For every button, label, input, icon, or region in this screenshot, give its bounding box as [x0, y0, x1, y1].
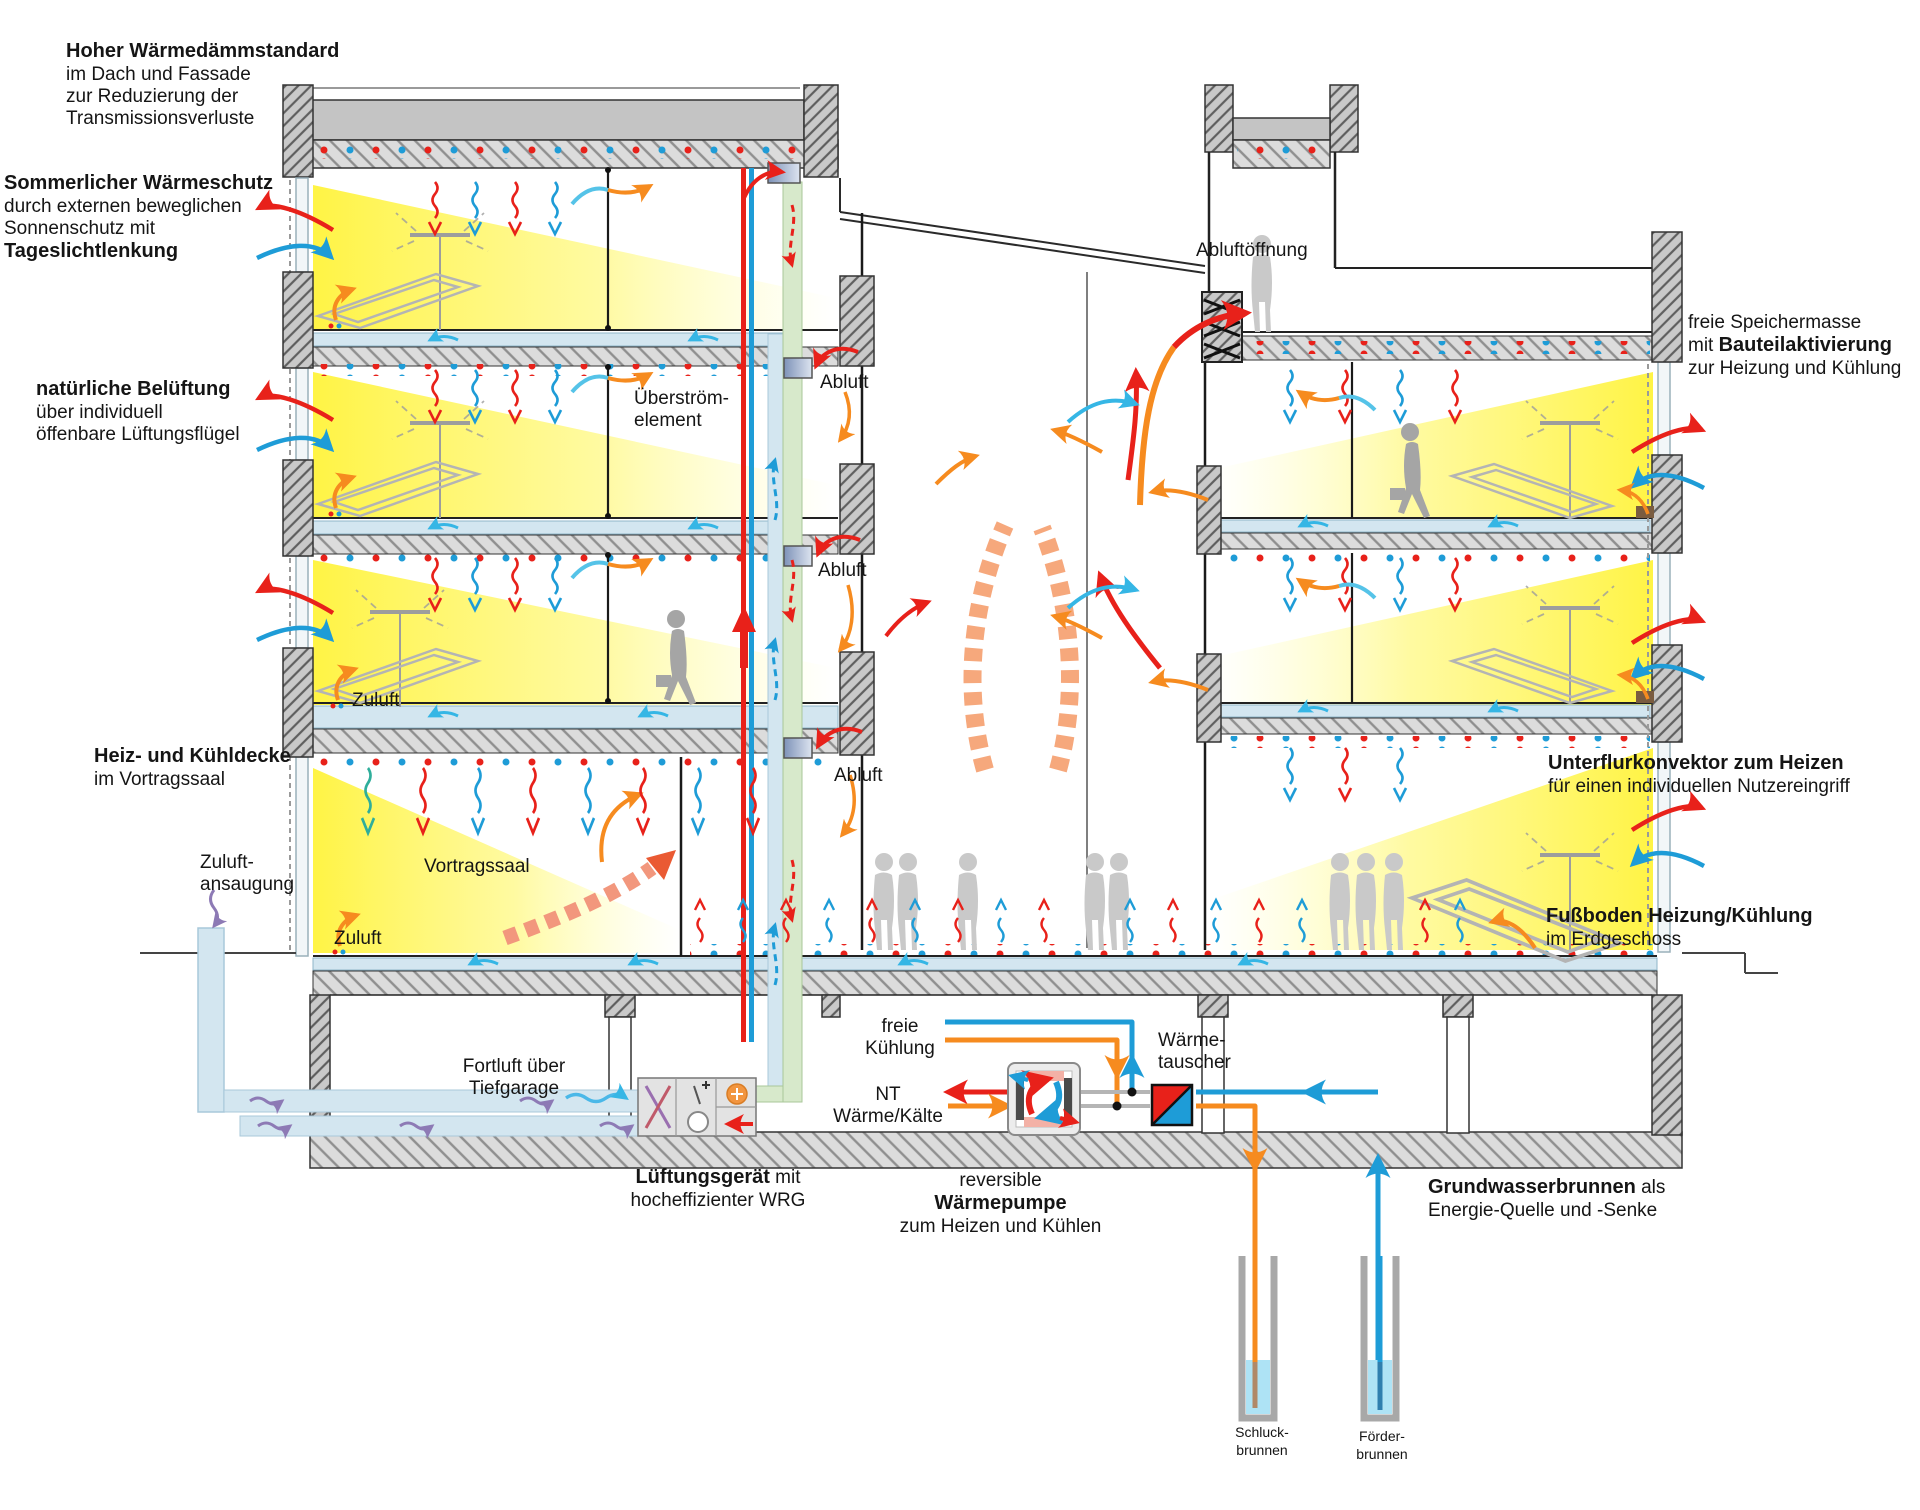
label-abluft-1: Abluft — [820, 372, 869, 394]
facade-right — [1648, 232, 1682, 952]
label-gw-bold: Grundwasserbrunnen — [1428, 1176, 1636, 1198]
label-nt: NT Wärme/Kälte — [822, 1084, 954, 1129]
label-hx-l1: Wärme- — [1158, 1030, 1231, 1052]
label-summer-protection: Sommerlicher Wärmeschutz durch externen … — [4, 172, 273, 264]
label-exhaust-opening: Abluftöffnung — [1196, 240, 1308, 262]
label-fortluft: Fortluft über Tiefgarage — [448, 1056, 580, 1101]
label-intake-l1: Zuluft- — [200, 852, 294, 874]
groundwater-wells — [1242, 1256, 1396, 1418]
label-mass-l2-bold: Bauteilaktivierung — [1719, 334, 1892, 356]
label-nt-l1: NT — [822, 1084, 954, 1106]
building-section-diagram: Hoher Wärmedämmstandard im Dach und Fass… — [0, 0, 1920, 1510]
label-freecool-l2: Kühlung — [845, 1038, 955, 1060]
label-gw-rest: als — [1636, 1177, 1666, 1198]
label-well2-l2: brunnen — [1342, 1446, 1422, 1464]
label-fortluft-l1: Fortluft über — [448, 1056, 580, 1078]
label-zuluft-ground: Zuluft — [334, 928, 382, 950]
label-natvent-title: natürliche Belüftung — [36, 378, 240, 402]
label-overflow-element: Überström- element — [634, 388, 729, 433]
label-production-well: Förder- brunnen — [1342, 1428, 1422, 1463]
label-natural-ventilation: natürliche Belüftung über individuell öf… — [36, 378, 240, 446]
label-thermal-mass: freie Speichermasse mit Bauteilaktivieru… — [1688, 312, 1901, 380]
label-abluft-3: Abluft — [834, 765, 883, 787]
label-heating-cooling-ceiling: Heiz- und Kühldecke im Vortragssaal — [94, 745, 291, 791]
label-well1-l2: brunnen — [1222, 1442, 1302, 1460]
label-well1-l1: Schluck- — [1222, 1424, 1302, 1442]
label-hp-l2: Wärmepumpe — [893, 1192, 1108, 1216]
exhaust-opening-louvre — [1202, 292, 1242, 362]
label-insulation-l3: Transmissionsverluste — [66, 108, 339, 130]
label-hx-l2: tauscher — [1158, 1052, 1231, 1074]
label-ahu-rest: mit — [770, 1167, 801, 1188]
label-floorheat-l1: im Erdgeschoss — [1546, 929, 1813, 951]
atrium-wall-piers — [840, 276, 1221, 755]
label-intake: Zuluft- ansaugung — [200, 852, 294, 897]
label-underfloor-convector: Unterflurkonvektor zum Heizen für einen … — [1548, 752, 1850, 798]
label-insulation: Hoher Wärmedämmstandard im Dach und Fass… — [66, 40, 339, 131]
label-hp-l3: zum Heizen und Kühlen — [893, 1216, 1108, 1238]
label-heat-exchanger: Wärme- tauscher — [1158, 1030, 1231, 1075]
label-overflow-l2: element — [634, 410, 729, 432]
label-ahu: Lüftungsgerät mit hocheffizienter WRG — [598, 1166, 838, 1212]
label-insulation-l2: zur Reduzierung der — [66, 86, 339, 108]
label-summer-l3: Tageslichtlenkung — [4, 240, 273, 264]
label-absorption-well: Schluck- brunnen — [1222, 1424, 1302, 1459]
label-well2-l1: Förder- — [1342, 1428, 1422, 1446]
label-ahu-bold: Lüftungsgerät — [635, 1166, 769, 1188]
label-groundwater: Grundwasserbrunnen als Energie-Quelle un… — [1428, 1176, 1665, 1222]
label-overflow-l1: Überström- — [634, 388, 729, 410]
label-mass-l1: freie Speichermasse — [1688, 312, 1901, 334]
label-intake-l2: ansaugung — [200, 874, 294, 896]
glass-atrium-roof — [840, 178, 1205, 273]
label-natvent-l1: über individuell — [36, 402, 240, 424]
label-hp-l1: reversible — [893, 1170, 1108, 1192]
ventilation-unit-icon — [638, 1078, 756, 1136]
label-insulation-title: Hoher Wärmedämmstandard — [66, 40, 339, 64]
label-mass-l3: zur Heizung und Kühlung — [1688, 358, 1901, 380]
label-gw-l2: Energie-Quelle und -Senke — [1428, 1200, 1665, 1222]
label-mass-l2-pre: mit — [1688, 335, 1719, 356]
label-ahu-l1: Lüftungsgerät mit — [598, 1166, 838, 1190]
label-ceiling-title: Heiz- und Kühldecke — [94, 745, 291, 769]
label-lecture-hall: Vortragssaal — [424, 856, 530, 878]
label-insulation-l1: im Dach und Fassade — [66, 64, 339, 86]
heat-pump-icon — [1008, 1063, 1080, 1135]
label-zuluft-upper: Zuluft — [352, 690, 400, 712]
label-ahu-l2: hocheffizienter WRG — [598, 1190, 838, 1212]
label-freecool-l1: freie — [845, 1016, 955, 1038]
label-convector-title: Unterflurkonvektor zum Heizen — [1548, 752, 1850, 776]
label-floorheat-title: Fußboden Heizung/Kühlung — [1546, 905, 1813, 929]
label-natvent-l2: öffenbare Lüftungsflügel — [36, 424, 240, 446]
heat-exchanger-icon — [1152, 1085, 1192, 1125]
label-heat-pump: reversible Wärmepumpe zum Heizen und Küh… — [893, 1170, 1108, 1238]
label-ceiling-l1: im Vortragssaal — [94, 769, 291, 791]
label-gw-l1: Grundwasserbrunnen als — [1428, 1176, 1665, 1200]
label-abluft-2: Abluft — [818, 560, 867, 582]
label-summer-l1: durch externen beweglichen — [4, 196, 273, 218]
label-summer-title: Sommerlicher Wärmeschutz — [4, 172, 273, 196]
label-floor-heating: Fußboden Heizung/Kühlung im Erdgeschoss — [1546, 905, 1813, 951]
facade-left — [283, 178, 313, 956]
label-fortluft-l2: Tiefgarage — [448, 1078, 580, 1100]
label-nt-l2: Wärme/Kälte — [822, 1106, 954, 1128]
label-mass-l2: mit Bauteilaktivierung — [1688, 334, 1901, 358]
label-convector-l1: für einen individuellen Nutzereingriff — [1548, 776, 1850, 798]
label-free-cooling: freie Kühlung — [845, 1016, 955, 1061]
label-summer-l2: Sonnenschutz mit — [4, 218, 273, 240]
